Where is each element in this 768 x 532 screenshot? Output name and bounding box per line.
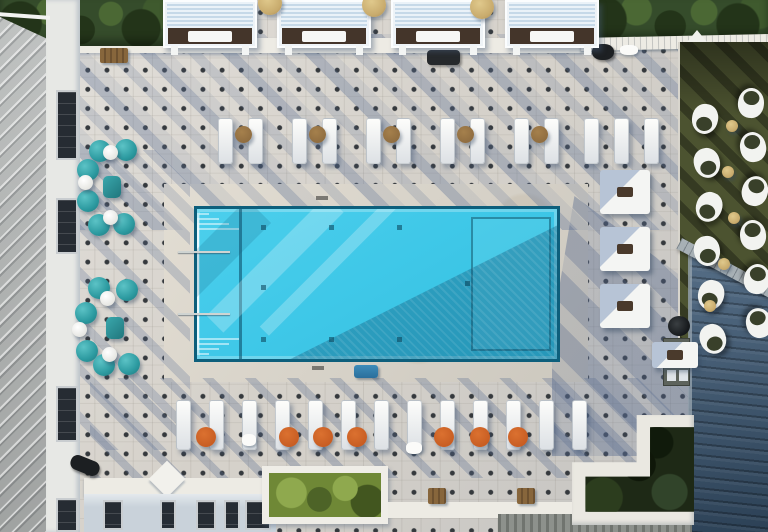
pool-handrail [178, 251, 230, 253]
swimming-pool [194, 206, 560, 362]
chair-seat-hollow [699, 159, 718, 177]
white-bistro-table [72, 322, 87, 337]
pool-light [329, 337, 334, 342]
wood-bench [100, 48, 128, 63]
daybed-cushion-tray [617, 244, 633, 254]
orange-side-table [470, 427, 490, 447]
lounge-chaise [544, 118, 559, 164]
cabana-post [470, 46, 477, 55]
lounge-chaise [644, 118, 659, 164]
chair-seat-hollow [699, 248, 717, 265]
depth-marking [316, 196, 328, 200]
cabana-post [356, 46, 363, 55]
white-towel [620, 45, 638, 55]
lounge-chaise [366, 118, 381, 164]
cabana-post [285, 46, 292, 55]
lounge-chaise [572, 400, 587, 450]
teal-bistro-chair [77, 190, 99, 212]
teal-bistro-chair [115, 139, 137, 161]
white-daybed [600, 284, 650, 328]
teal-pouf [106, 317, 124, 339]
cabana-daybed [530, 31, 574, 42]
lounge-chaise [614, 118, 629, 164]
building-window [56, 498, 78, 532]
left-metal-roof [0, 0, 46, 532]
pool-light [261, 285, 266, 290]
white-bistro-table [100, 291, 115, 306]
cabana-louvered-roof [509, 2, 595, 28]
pool-light [397, 225, 402, 230]
cabana [277, 0, 371, 48]
white-bistro-table [103, 145, 118, 160]
pool-light [261, 225, 266, 230]
orange-side-table [434, 427, 454, 447]
lounge-chaise [322, 118, 337, 164]
lounge-chaise [584, 118, 599, 164]
building-window [56, 386, 78, 442]
lounge-chaise [218, 118, 233, 164]
planter-green-trees [262, 466, 388, 524]
chair-seat-hollow [705, 334, 725, 353]
brown-side-table [235, 126, 252, 143]
chair-seat-hollow [747, 177, 766, 195]
chair-seat-hollow [744, 222, 761, 237]
poolside-blue-chair [354, 365, 378, 378]
pool-light [261, 337, 266, 342]
facade-window [103, 500, 123, 530]
cabana-louvered-roof [167, 2, 253, 28]
pool-light [329, 225, 334, 230]
chair-seat-hollow [695, 116, 713, 133]
chair-seat-hollow [743, 134, 761, 151]
cabana-post [513, 46, 520, 55]
turf-side-table [722, 166, 734, 178]
white-towel [242, 434, 256, 446]
cabana-post [242, 46, 249, 55]
aerial-pool-photo [0, 0, 768, 532]
lounge-chaise [539, 400, 554, 450]
chair-seat-hollow [697, 202, 717, 221]
grill-equipment [427, 50, 460, 65]
cabana-daybed [302, 31, 346, 42]
orange-side-table [508, 427, 528, 447]
brown-side-table [531, 126, 548, 143]
white-bistro-table [102, 347, 117, 362]
chair-seat-hollow [748, 309, 767, 327]
turf-side-table [728, 212, 740, 224]
cabinet-slot [667, 370, 676, 381]
pool-light [465, 281, 470, 286]
equipment-drum [668, 316, 690, 336]
orange-side-table [313, 427, 333, 447]
depth-marking [312, 366, 324, 370]
chair-seat-hollow [743, 90, 760, 105]
facade-window [224, 500, 240, 530]
brown-side-table [383, 126, 400, 143]
turf-side-table [704, 300, 716, 312]
cabana-post [171, 46, 178, 55]
cabinet-slot [679, 370, 688, 381]
lounge-chaise [374, 400, 389, 450]
lounge-chaise [514, 118, 529, 164]
teal-bistro-chair [75, 302, 97, 324]
teal-bistro-chair [116, 279, 138, 301]
brown-side-table [309, 126, 326, 143]
cabana [163, 0, 257, 48]
chair-seat-hollow [749, 266, 767, 283]
cabana-post [584, 46, 591, 55]
orange-side-table [347, 427, 367, 447]
turf-side-table [726, 120, 738, 132]
teal-bistro-chair [118, 353, 140, 375]
lounge-chaise [176, 400, 191, 450]
orange-side-table [279, 427, 299, 447]
daybed-cushion-tray [617, 301, 633, 311]
cabana [505, 0, 599, 48]
lounge-chaise [292, 118, 307, 164]
daybed-cushion-tray [667, 350, 683, 360]
white-bistro-table [103, 210, 118, 225]
cabana-louvered-roof [281, 2, 367, 28]
wood-table [517, 488, 535, 504]
left-building-wall [46, 0, 80, 532]
building-window [56, 198, 78, 254]
cabana-daybed [188, 31, 232, 42]
turf-side-table [718, 258, 730, 270]
white-bistro-table [78, 175, 93, 190]
lounge-chaise [248, 118, 263, 164]
building-window [56, 90, 78, 160]
pool-light [397, 337, 402, 342]
orange-side-table [196, 427, 216, 447]
pool-handrail [178, 313, 230, 315]
brown-side-table [457, 126, 474, 143]
facade-window [160, 500, 176, 530]
lounge-chaise [470, 118, 485, 164]
white-daybed [600, 170, 650, 214]
cabana-daybed [416, 31, 460, 42]
cabana-post [399, 46, 406, 55]
white-daybed [600, 227, 650, 271]
lounge-chaise [396, 118, 411, 164]
white-towel [406, 442, 422, 454]
daybed-cushion-tray [617, 187, 633, 197]
cabana-louvered-roof [395, 2, 481, 28]
white-daybed [652, 342, 698, 368]
lounge-chaise [440, 118, 455, 164]
facade-window [196, 500, 216, 530]
wood-table [428, 488, 446, 504]
teal-pouf [103, 176, 121, 198]
